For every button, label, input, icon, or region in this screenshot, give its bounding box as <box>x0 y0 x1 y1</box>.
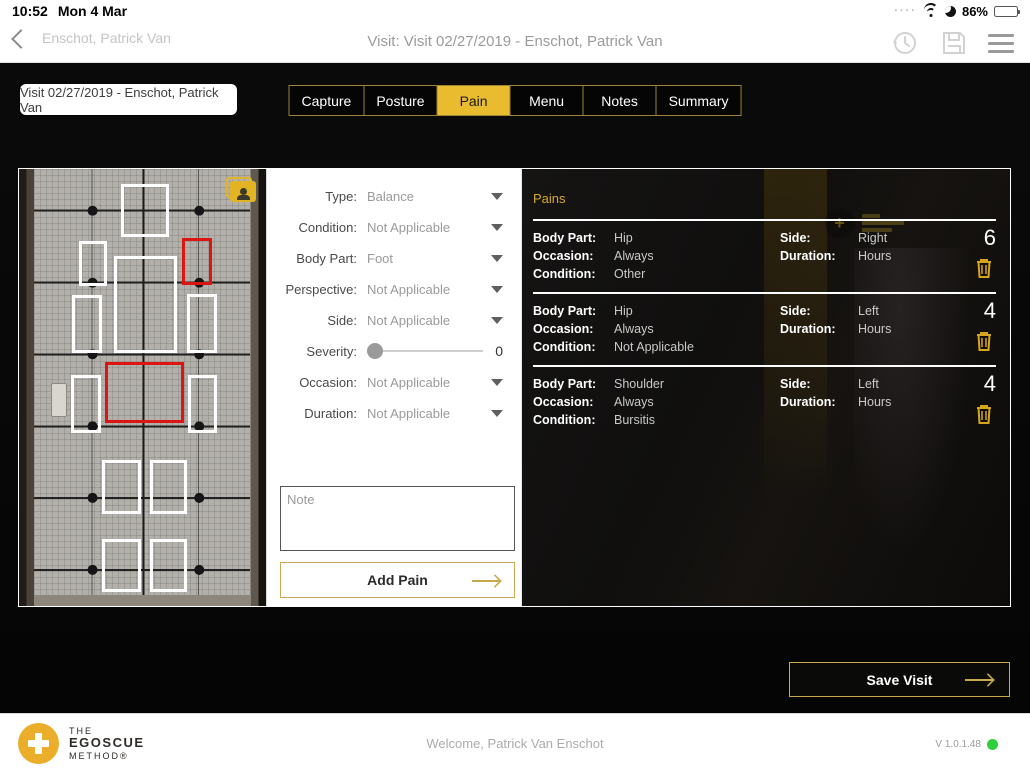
page-title: Visit: Visit 02/27/2019 - Enschot, Patri… <box>0 33 1030 50</box>
pain-severity: 4 <box>984 371 996 397</box>
body-part-select[interactable]: Foot <box>367 251 491 266</box>
pain-entry: Body Part: Hip Side: Right Occasion: Alw… <box>533 219 996 292</box>
body-zone-hip-left[interactable] <box>188 375 217 433</box>
severity-label: Severity: <box>267 344 367 359</box>
posture-photo[interactable] <box>19 169 266 606</box>
duration-value: Hours <box>858 322 891 336</box>
menu-hamburger-icon[interactable] <box>988 34 1014 53</box>
tab-pain[interactable]: Pain <box>438 86 511 115</box>
pains-panel-title: Pains <box>533 191 566 206</box>
perspective-select[interactable]: Not Applicable <box>367 282 491 297</box>
perspective-label: Perspective: <box>267 282 367 297</box>
condition-select[interactable]: Not Applicable <box>367 220 491 235</box>
occasion-value: Always <box>614 249 702 263</box>
photo-overlay-toggle-icon[interactable] <box>230 181 256 202</box>
body-part-value: Shoulder <box>614 377 702 391</box>
body-zone-hip-center[interactable] <box>105 362 184 423</box>
side-label: Side: <box>267 313 367 328</box>
type-select[interactable]: Balance <box>367 189 491 204</box>
occasion-select[interactable]: Not Applicable <box>367 375 491 390</box>
pains-panel: + Pains Body Part: Hip Side: Right Occas… <box>521 169 1010 606</box>
type-label: Type: <box>267 189 367 204</box>
clock-date: Mon 4 Mar <box>58 3 127 19</box>
app-version: V 1.0.1.48 <box>935 739 998 750</box>
occasion-label: Occasion: <box>267 375 367 390</box>
duration-label: Duration: <box>780 249 850 263</box>
footer-bar: THE EGOSCUE METHOD® Welcome, Patrick Van… <box>0 713 1030 773</box>
condition-value: Bursitis <box>614 413 655 427</box>
wifi-icon <box>923 5 939 17</box>
delete-pain-trash-icon[interactable] <box>974 257 994 284</box>
pain-form: Type: Balance Condition: Not Applicable … <box>266 169 521 606</box>
pain-list: Body Part: Hip Side: Right Occasion: Alw… <box>533 219 996 438</box>
body-part-label: Body Part: <box>533 304 606 318</box>
app-canvas: 10:52 Mon 4 Mar ···· 86% Enschot, Patric… <box>0 0 1030 773</box>
side-label: Side: <box>780 304 850 318</box>
body-part-label: Body Part: <box>533 377 606 391</box>
body-zone-arm-left[interactable] <box>187 294 217 353</box>
side-value: Right <box>858 231 887 245</box>
condition-label: Condition: <box>533 413 606 427</box>
body-part-label: Body Part: <box>533 231 606 245</box>
body-zone-shoulder-left[interactable] <box>182 238 212 285</box>
body-zone-hip-right[interactable] <box>71 375 101 433</box>
body-zone-thigh-right[interactable] <box>102 460 141 515</box>
delete-pain-trash-icon[interactable] <box>974 403 994 430</box>
pain-severity: 6 <box>984 225 996 251</box>
occasion-label: Occasion: <box>533 249 606 263</box>
add-pain-label: Add Pain <box>367 572 428 588</box>
side-label: Side: <box>780 231 850 245</box>
note-input[interactable] <box>280 486 515 551</box>
duration-select[interactable]: Not Applicable <box>367 406 491 421</box>
body-zone-head[interactable] <box>121 184 169 237</box>
duration-label: Duration: <box>267 406 367 421</box>
body-zone-overlay <box>19 169 266 606</box>
pain-entry: Body Part: Shoulder Side: Left Occasion:… <box>533 365 996 438</box>
condition-label: Condition: <box>533 340 606 354</box>
save-visit-label: Save Visit <box>867 672 933 688</box>
tab-posture[interactable]: Posture <box>364 86 437 115</box>
arrow-right-icon <box>965 679 993 681</box>
pain-severity: 4 <box>984 298 996 324</box>
body-zone-calf-left[interactable] <box>150 539 187 592</box>
connection-status-dot <box>987 739 998 750</box>
add-pain-button[interactable]: Add Pain <box>280 562 515 598</box>
body-part-label: Body Part: <box>267 251 367 266</box>
chevron-down-icon[interactable] <box>491 255 503 262</box>
arrow-right-icon <box>472 580 500 582</box>
status-bar: 10:52 Mon 4 Mar ···· 86% <box>0 0 1030 22</box>
body-zone-shoulder-right[interactable] <box>79 241 107 286</box>
history-icon[interactable] <box>890 28 920 58</box>
occasion-label: Occasion: <box>533 322 606 336</box>
occasion-label: Occasion: <box>533 395 606 409</box>
duration-label: Duration: <box>780 395 850 409</box>
chevron-down-icon[interactable] <box>491 193 503 200</box>
chevron-down-icon[interactable] <box>491 410 503 417</box>
severity-value: 0 <box>489 343 503 359</box>
body-part-value: Hip <box>614 231 702 245</box>
do-not-disturb-moon-icon <box>945 6 956 17</box>
pain-entry: Body Part: Hip Side: Left Occasion: Alwa… <box>533 292 996 365</box>
side-label: Side: <box>780 377 850 391</box>
nav-bar: Enschot, Patrick Van Visit: Visit 02/27/… <box>0 22 1030 63</box>
clock-time: 10:52 <box>12 3 48 19</box>
version-text: V 1.0.1.48 <box>935 739 981 750</box>
body-zone-torso[interactable] <box>114 256 177 353</box>
condition-value: Other <box>614 267 645 281</box>
body-zone-calf-right[interactable] <box>102 539 141 592</box>
delete-pain-trash-icon[interactable] <box>974 330 994 357</box>
duration-label: Duration: <box>780 322 850 336</box>
tab-notes[interactable]: Notes <box>584 86 657 115</box>
severity-slider-thumb[interactable] <box>367 343 383 359</box>
chevron-down-icon[interactable] <box>491 317 503 324</box>
battery-percent: 86% <box>962 4 988 19</box>
chevron-down-icon[interactable] <box>491 379 503 386</box>
duration-value: Hours <box>858 249 891 263</box>
condition-label: Condition: <box>533 267 606 281</box>
condition-label: Condition: <box>267 220 367 235</box>
visit-selector-chip[interactable]: Visit 02/27/2019 - Enschot, Patrick Van <box>20 84 237 115</box>
chevron-down-icon[interactable] <box>491 286 503 293</box>
occasion-value: Always <box>614 395 702 409</box>
severity-slider[interactable] <box>367 343 483 359</box>
save-visit-button[interactable]: Save Visit <box>789 662 1010 697</box>
battery-icon <box>994 6 1018 17</box>
occasion-value: Always <box>614 322 702 336</box>
tab-capture[interactable]: Capture <box>290 86 365 115</box>
cellular-signal-icon: ···· <box>894 5 917 17</box>
save-icon[interactable] <box>940 29 968 57</box>
tab-menu[interactable]: Menu <box>511 86 584 115</box>
chevron-down-icon[interactable] <box>491 224 503 231</box>
side-select[interactable]: Not Applicable <box>367 313 491 328</box>
welcome-text: Welcome, Patrick Van Enschot <box>0 736 1030 751</box>
body-part-value: Hip <box>614 304 702 318</box>
main-panel: Type: Balance Condition: Not Applicable … <box>18 168 1011 607</box>
body-zone-thigh-left[interactable] <box>150 460 187 515</box>
duration-value: Hours <box>858 395 891 409</box>
condition-value: Not Applicable <box>614 340 694 354</box>
tab-bar: Capture Posture Pain Menu Notes Summary <box>289 85 742 116</box>
side-value: Left <box>858 304 879 318</box>
brand-line: METHOD® <box>69 751 145 761</box>
tab-summary[interactable]: Summary <box>657 86 741 115</box>
side-value: Left <box>858 377 879 391</box>
body-zone-arm-right[interactable] <box>72 295 102 353</box>
